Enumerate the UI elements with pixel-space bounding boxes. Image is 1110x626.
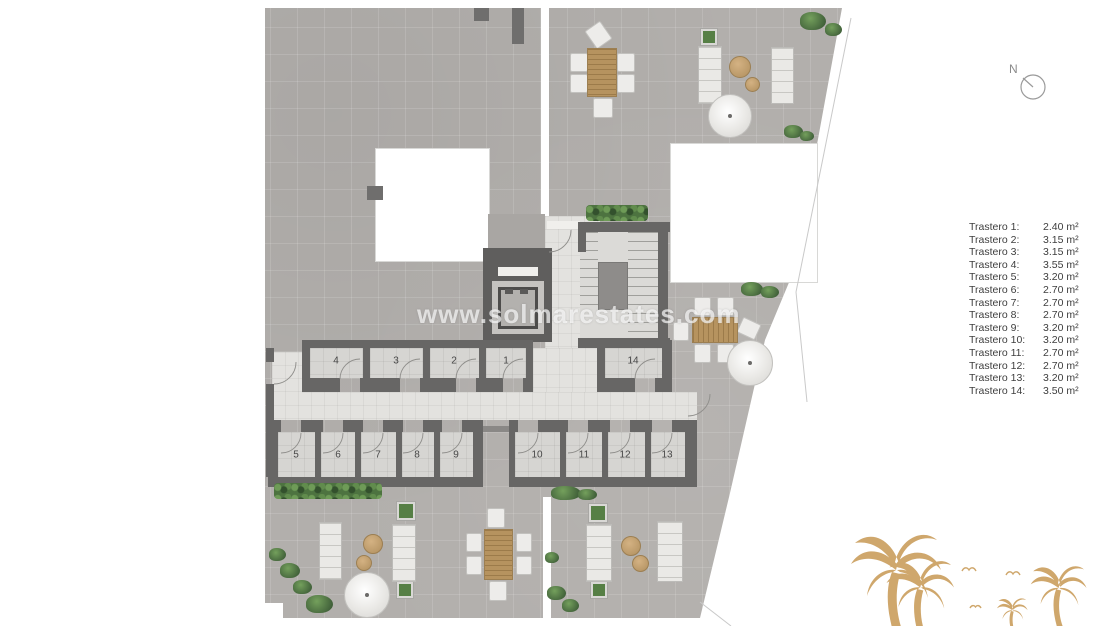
corridor-entry-floor xyxy=(272,352,302,396)
room-label-10: 10 xyxy=(531,450,542,461)
palm-trees-illustration xyxy=(851,535,1087,626)
legend-value: 3.20 m² xyxy=(1043,322,1085,335)
legend-label: Trastero 14: xyxy=(969,385,1043,398)
corridor-connector-floor xyxy=(533,348,597,394)
chair xyxy=(466,533,482,552)
legend-row: Trastero 11:2.70 m² xyxy=(969,347,1085,360)
legend-row: Trastero 4:3.55 m² xyxy=(969,259,1085,272)
planter xyxy=(397,582,413,598)
chair xyxy=(570,53,588,72)
wall-segment xyxy=(301,420,323,432)
legend-label: Trastero 3: xyxy=(969,246,1043,259)
stairs-planter-hedge xyxy=(586,205,648,221)
void-wall-handle xyxy=(367,186,383,200)
wall-segment xyxy=(560,432,566,477)
wall-segment xyxy=(645,432,651,477)
wall-segment xyxy=(355,432,361,477)
side-table xyxy=(621,536,641,556)
sun-lounger xyxy=(319,522,342,580)
legend-label: Trastero 4: xyxy=(969,259,1043,272)
chair xyxy=(487,508,505,528)
planter xyxy=(701,29,717,45)
wall-segment xyxy=(266,348,274,362)
chair xyxy=(593,98,613,118)
sun-lounger xyxy=(698,46,722,104)
legend-row: Trastero 14:3.50 m² xyxy=(969,385,1085,398)
legend-value: 3.50 m² xyxy=(1043,385,1085,398)
side-table xyxy=(632,555,649,572)
bush xyxy=(545,552,559,563)
legend-row: Trastero 9:3.20 m² xyxy=(969,322,1085,335)
wall-segment xyxy=(672,420,697,432)
elevator-car-detail xyxy=(520,289,528,294)
chimney-vent xyxy=(512,8,524,44)
legend-value: 3.20 m² xyxy=(1043,271,1085,284)
legend-value: 3.20 m² xyxy=(1043,334,1085,347)
legend-label: Trastero 6: xyxy=(969,284,1043,297)
side-table xyxy=(745,77,760,92)
legend-value: 3.55 m² xyxy=(1043,259,1085,272)
chimney-vent xyxy=(474,8,489,21)
sun-lounger xyxy=(657,521,683,582)
planter xyxy=(589,504,607,522)
side-table xyxy=(356,555,372,571)
legend-label: Trastero 12: xyxy=(969,360,1043,373)
room-label-1: 1 xyxy=(503,356,509,367)
wall-segment xyxy=(655,378,672,392)
wall-segment xyxy=(462,420,483,432)
wall-segment xyxy=(302,378,340,392)
dining-table xyxy=(484,529,513,580)
legend-value: 3.20 m² xyxy=(1043,372,1085,385)
side-table xyxy=(363,534,383,554)
hedge xyxy=(274,483,382,499)
legend-label: Trastero 10: xyxy=(969,334,1043,347)
room-label-9: 9 xyxy=(453,450,459,461)
sun-lounger xyxy=(771,47,794,104)
legend-label: Trastero 1: xyxy=(969,221,1043,234)
wall-segment xyxy=(423,340,430,380)
room-label-2: 2 xyxy=(451,356,457,367)
wall-segment xyxy=(343,420,363,432)
bush xyxy=(562,599,579,612)
legend-row: Trastero 7:2.70 m² xyxy=(969,297,1085,310)
chair xyxy=(617,53,635,72)
wall-segment xyxy=(509,477,697,487)
legend-label: Trastero 11: xyxy=(969,347,1043,360)
birds-illustration xyxy=(962,568,1020,608)
wall-segment xyxy=(434,432,440,477)
room-label-11: 11 xyxy=(579,450,589,461)
legend-label: Trastero 9: xyxy=(969,322,1043,335)
chair xyxy=(617,74,635,93)
elevator-door-sill xyxy=(498,267,538,276)
legend-value: 2.40 m² xyxy=(1043,221,1085,234)
wall-segment xyxy=(476,378,503,392)
wall-segment xyxy=(479,340,486,380)
room-label-4: 4 xyxy=(333,356,339,367)
legend-label: Trastero 7: xyxy=(969,297,1043,310)
bush xyxy=(547,586,566,600)
void-lightwell-left xyxy=(375,148,490,262)
void-lightwell-right xyxy=(670,143,818,283)
room-label-12: 12 xyxy=(619,450,630,461)
wall-segment xyxy=(383,420,403,432)
wall-segment xyxy=(302,340,533,348)
legend-row: Trastero 1:2.40 m² xyxy=(969,221,1085,234)
bush xyxy=(306,595,333,613)
wall-segment xyxy=(266,384,274,477)
bush xyxy=(551,486,581,500)
wall-segment xyxy=(597,378,635,392)
passage-step xyxy=(483,426,509,432)
parasol xyxy=(708,94,752,138)
wall-segment xyxy=(473,432,483,477)
wall-segment xyxy=(363,340,370,380)
bush xyxy=(761,286,779,298)
expansion-joint-top xyxy=(541,8,549,218)
wall-segment xyxy=(630,420,652,432)
storage-legend: Trastero 1:2.40 m² Trastero 2:3.15 m² Tr… xyxy=(969,221,1085,397)
legend-row: Trastero 10:3.20 m² xyxy=(969,334,1085,347)
wall-segment xyxy=(423,420,442,432)
legend-label: Trastero 5: xyxy=(969,271,1043,284)
north-label: N xyxy=(1009,62,1018,76)
legend-value: 3.15 m² xyxy=(1043,234,1085,247)
bush xyxy=(293,580,312,594)
legend-row: Trastero 2:3.15 m² xyxy=(969,234,1085,247)
wall-segment xyxy=(509,432,515,477)
room-label-3: 3 xyxy=(393,356,399,367)
wall-segment xyxy=(396,432,402,477)
legend-row: Trastero 5:3.20 m² xyxy=(969,271,1085,284)
legend-value: 2.70 m² xyxy=(1043,309,1085,322)
bush xyxy=(800,131,814,141)
legend-value: 2.70 m² xyxy=(1043,347,1085,360)
side-table xyxy=(729,56,751,78)
wall-segment xyxy=(578,222,670,232)
legend-row: Trastero 8:2.70 m² xyxy=(969,309,1085,322)
room-label-14: 14 xyxy=(627,356,638,367)
parasol xyxy=(727,340,773,386)
legend-row: Trastero 6:2.70 m² xyxy=(969,284,1085,297)
chair xyxy=(570,74,588,93)
legend-label: Trastero 8: xyxy=(969,309,1043,322)
dining-table xyxy=(587,48,617,97)
chair xyxy=(489,581,507,601)
wall-segment xyxy=(523,378,533,392)
north-arrow-icon xyxy=(1021,75,1045,99)
wall-segment xyxy=(578,222,586,252)
room-label-13: 13 xyxy=(661,450,672,461)
wall-segment xyxy=(360,378,400,392)
chair xyxy=(516,556,532,575)
wall-segment xyxy=(685,432,697,477)
room-label-7: 7 xyxy=(375,450,381,461)
legend-row: Trastero 3:3.15 m² xyxy=(969,246,1085,259)
room-label-6: 6 xyxy=(335,450,341,461)
room-label-8: 8 xyxy=(414,450,420,461)
bush xyxy=(269,548,286,561)
floorplan-canvas: www.solmarestates.com 1 2 3 4 5 6 7 8 9 … xyxy=(0,0,1110,626)
parasol xyxy=(344,572,390,618)
planter xyxy=(591,582,607,598)
bush xyxy=(578,489,597,500)
wall-segment xyxy=(509,420,518,432)
wall-segment xyxy=(602,432,608,477)
wall-segment xyxy=(302,340,310,380)
chair xyxy=(694,344,711,363)
sun-lounger xyxy=(586,524,612,582)
legend-value: 2.70 m² xyxy=(1043,297,1085,310)
legend-value: 2.70 m² xyxy=(1043,360,1085,373)
legend-label: Trastero 2: xyxy=(969,234,1043,247)
bush xyxy=(800,12,826,30)
wall-segment xyxy=(538,420,568,432)
elevator-car-detail xyxy=(505,289,513,294)
legend-label: Trastero 13: xyxy=(969,372,1043,385)
sun-lounger xyxy=(392,524,416,582)
bush xyxy=(741,282,763,296)
bush xyxy=(825,23,842,36)
wall-segment xyxy=(315,432,321,477)
legend-value: 2.70 m² xyxy=(1043,284,1085,297)
legend-value: 3.15 m² xyxy=(1043,246,1085,259)
chair xyxy=(466,556,482,575)
chair xyxy=(516,533,532,552)
room-label-5: 5 xyxy=(293,450,299,461)
door-threshold xyxy=(547,221,580,229)
bush xyxy=(280,563,300,578)
wall-segment xyxy=(597,340,672,348)
legend-row: Trastero 13:3.20 m² xyxy=(969,372,1085,385)
legend-row: Trastero 12:2.70 m² xyxy=(969,360,1085,373)
planter xyxy=(397,502,415,520)
wall-segment xyxy=(420,378,456,392)
corridor-floor xyxy=(272,392,697,420)
watermark: www.solmarestates.com xyxy=(417,299,741,330)
wall-segment xyxy=(588,420,610,432)
